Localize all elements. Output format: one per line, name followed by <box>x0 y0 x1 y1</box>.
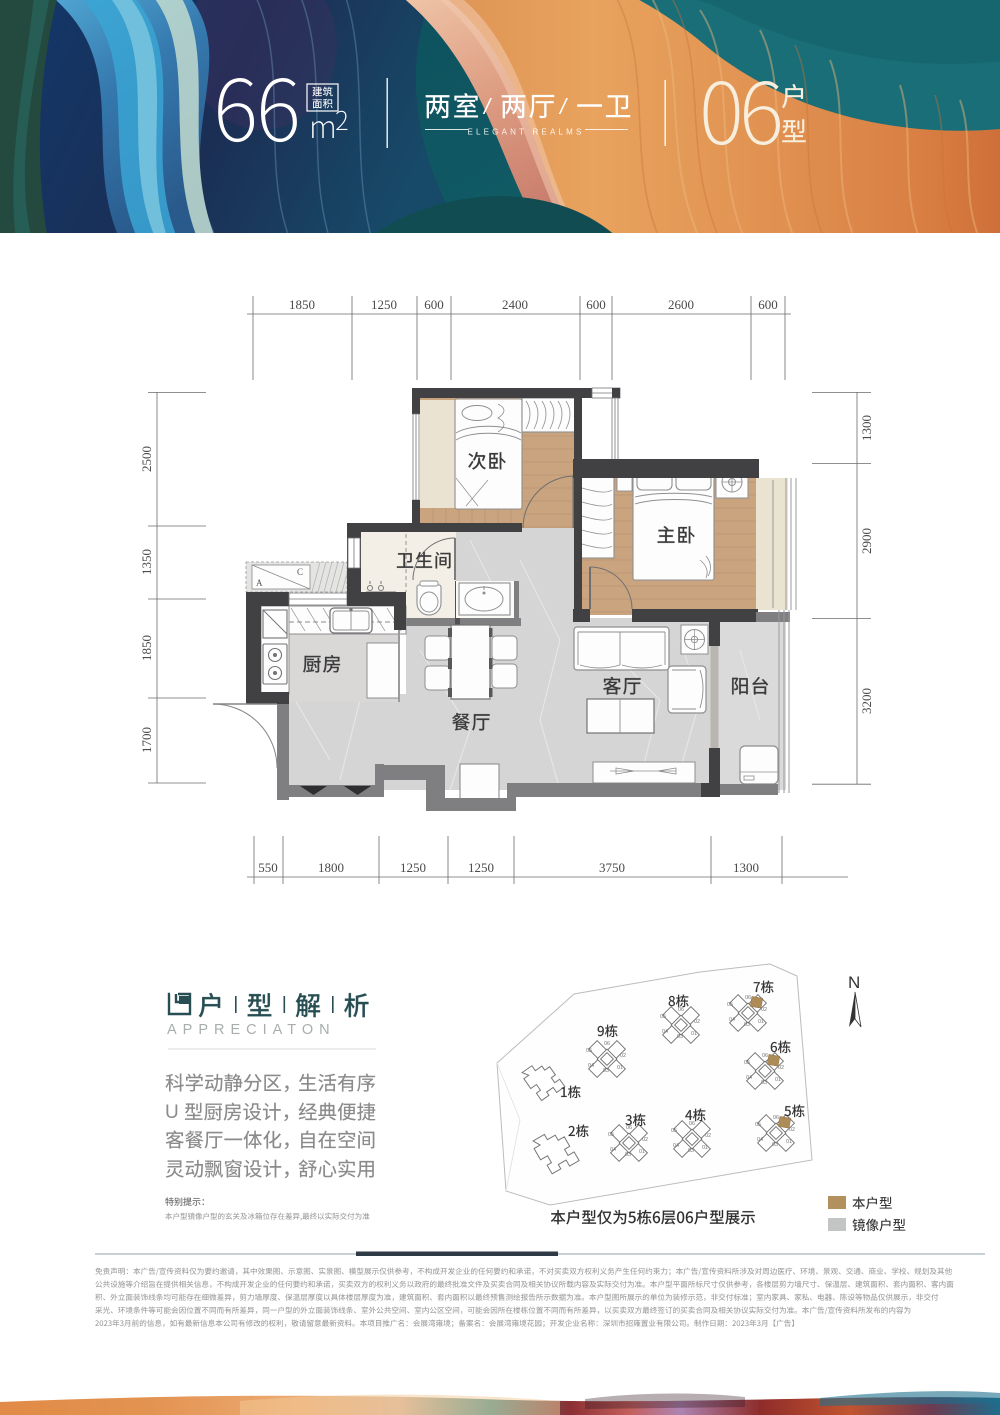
svg-text:03: 03 <box>744 1022 750 1028</box>
svg-text:2400: 2400 <box>502 297 528 312</box>
svg-text:05: 05 <box>727 1002 733 1008</box>
svg-text:05: 05 <box>755 1122 761 1128</box>
svg-text:05: 05 <box>608 1132 614 1138</box>
svg-text:01: 01 <box>758 1019 764 1025</box>
svg-text:02: 02 <box>620 1053 626 1059</box>
svg-text:02: 02 <box>778 1065 784 1071</box>
svg-text:3750: 3750 <box>599 860 625 875</box>
svg-text:600: 600 <box>586 297 606 312</box>
svg-text:05: 05 <box>660 1014 666 1020</box>
svg-text:ELEGANT REALMS: ELEGANT REALMS <box>467 128 584 137</box>
svg-text:600: 600 <box>424 297 444 312</box>
svg-text:04: 04 <box>673 1143 679 1149</box>
svg-text:U: U <box>165 1102 179 1123</box>
svg-text:06: 06 <box>745 995 751 1001</box>
svg-text:02: 02 <box>705 1133 711 1139</box>
svg-text:3200: 3200 <box>859 688 874 714</box>
svg-text:2900: 2900 <box>859 528 874 554</box>
svg-text:06: 06 <box>762 1053 768 1059</box>
svg-text:1350: 1350 <box>139 549 154 575</box>
svg-text:1800: 1800 <box>318 860 344 875</box>
svg-text:01: 01 <box>639 1149 645 1155</box>
svg-text:04: 04 <box>757 1137 763 1143</box>
svg-text:02: 02 <box>761 1007 767 1013</box>
svg-text:02: 02 <box>694 1019 700 1025</box>
svg-text:02: 02 <box>642 1137 648 1143</box>
svg-text:06: 06 <box>689 1121 695 1127</box>
svg-text:A: A <box>256 578 263 588</box>
svg-text:04: 04 <box>610 1147 616 1153</box>
svg-text:05: 05 <box>744 1060 750 1066</box>
svg-text:03: 03 <box>688 1148 694 1154</box>
svg-text:04: 04 <box>588 1063 594 1069</box>
svg-text:04: 04 <box>729 1017 735 1023</box>
svg-text:01: 01 <box>786 1139 792 1145</box>
svg-text:1250: 1250 <box>400 860 426 875</box>
svg-text:1300: 1300 <box>733 860 759 875</box>
svg-text:2500: 2500 <box>139 446 154 472</box>
svg-text:01: 01 <box>691 1031 697 1037</box>
svg-text:06: 06 <box>773 1115 779 1121</box>
svg-text:05: 05 <box>586 1048 592 1054</box>
svg-text:600: 600 <box>758 297 778 312</box>
svg-text:06: 06 <box>678 1007 684 1013</box>
svg-text:03: 03 <box>677 1034 683 1040</box>
svg-text:1250: 1250 <box>468 860 494 875</box>
svg-text:05: 05 <box>671 1128 677 1134</box>
svg-text:04: 04 <box>746 1075 752 1081</box>
svg-text:02: 02 <box>789 1127 795 1133</box>
svg-text:06: 06 <box>626 1125 632 1131</box>
svg-text:03: 03 <box>625 1152 631 1158</box>
svg-text:1850: 1850 <box>139 635 154 661</box>
svg-text:APPRECIATON: APPRECIATON <box>167 1022 336 1038</box>
svg-text:C: C <box>297 567 303 577</box>
svg-text:01: 01 <box>775 1077 781 1083</box>
svg-text:550: 550 <box>258 860 278 875</box>
svg-text:01: 01 <box>617 1065 623 1071</box>
svg-text:N: N <box>848 973 860 992</box>
svg-text:03: 03 <box>761 1080 767 1086</box>
svg-text:06: 06 <box>604 1041 610 1047</box>
svg-text:03: 03 <box>603 1068 609 1074</box>
svg-text:04: 04 <box>662 1029 668 1035</box>
svg-text:03: 03 <box>772 1142 778 1148</box>
svg-text:1250: 1250 <box>371 297 397 312</box>
svg-text:1850: 1850 <box>289 297 315 312</box>
svg-text:1700: 1700 <box>139 727 154 753</box>
svg-text:2600: 2600 <box>668 297 694 312</box>
svg-text:1300: 1300 <box>859 415 874 441</box>
svg-text:01: 01 <box>702 1145 708 1151</box>
